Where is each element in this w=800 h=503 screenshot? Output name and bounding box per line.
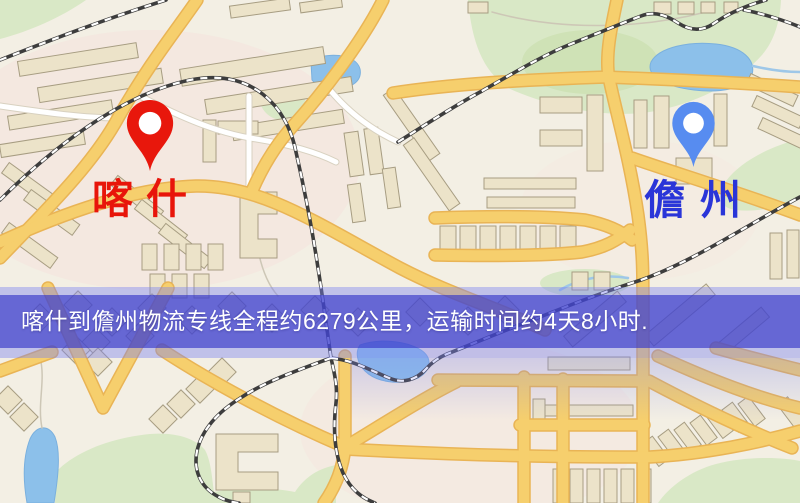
map-page: 喀什到儋州物流专线全程约6279公里，运输时间约4天8小时. 喀什 儋州	[0, 0, 800, 503]
route-info-banner: 喀什到儋州物流专线全程约6279公里，运输时间约4天8小时.	[0, 295, 800, 348]
destination-label: 儋州	[644, 180, 756, 221]
origin-pin[interactable]	[125, 99, 175, 171]
origin-label: 喀什	[92, 179, 200, 220]
route-info-text: 喀什到儋州物流专线全程约6279公里，运输时间约4天8小时.	[21, 295, 648, 348]
destination-pin[interactable]	[670, 101, 717, 167]
map-image	[0, 0, 800, 503]
